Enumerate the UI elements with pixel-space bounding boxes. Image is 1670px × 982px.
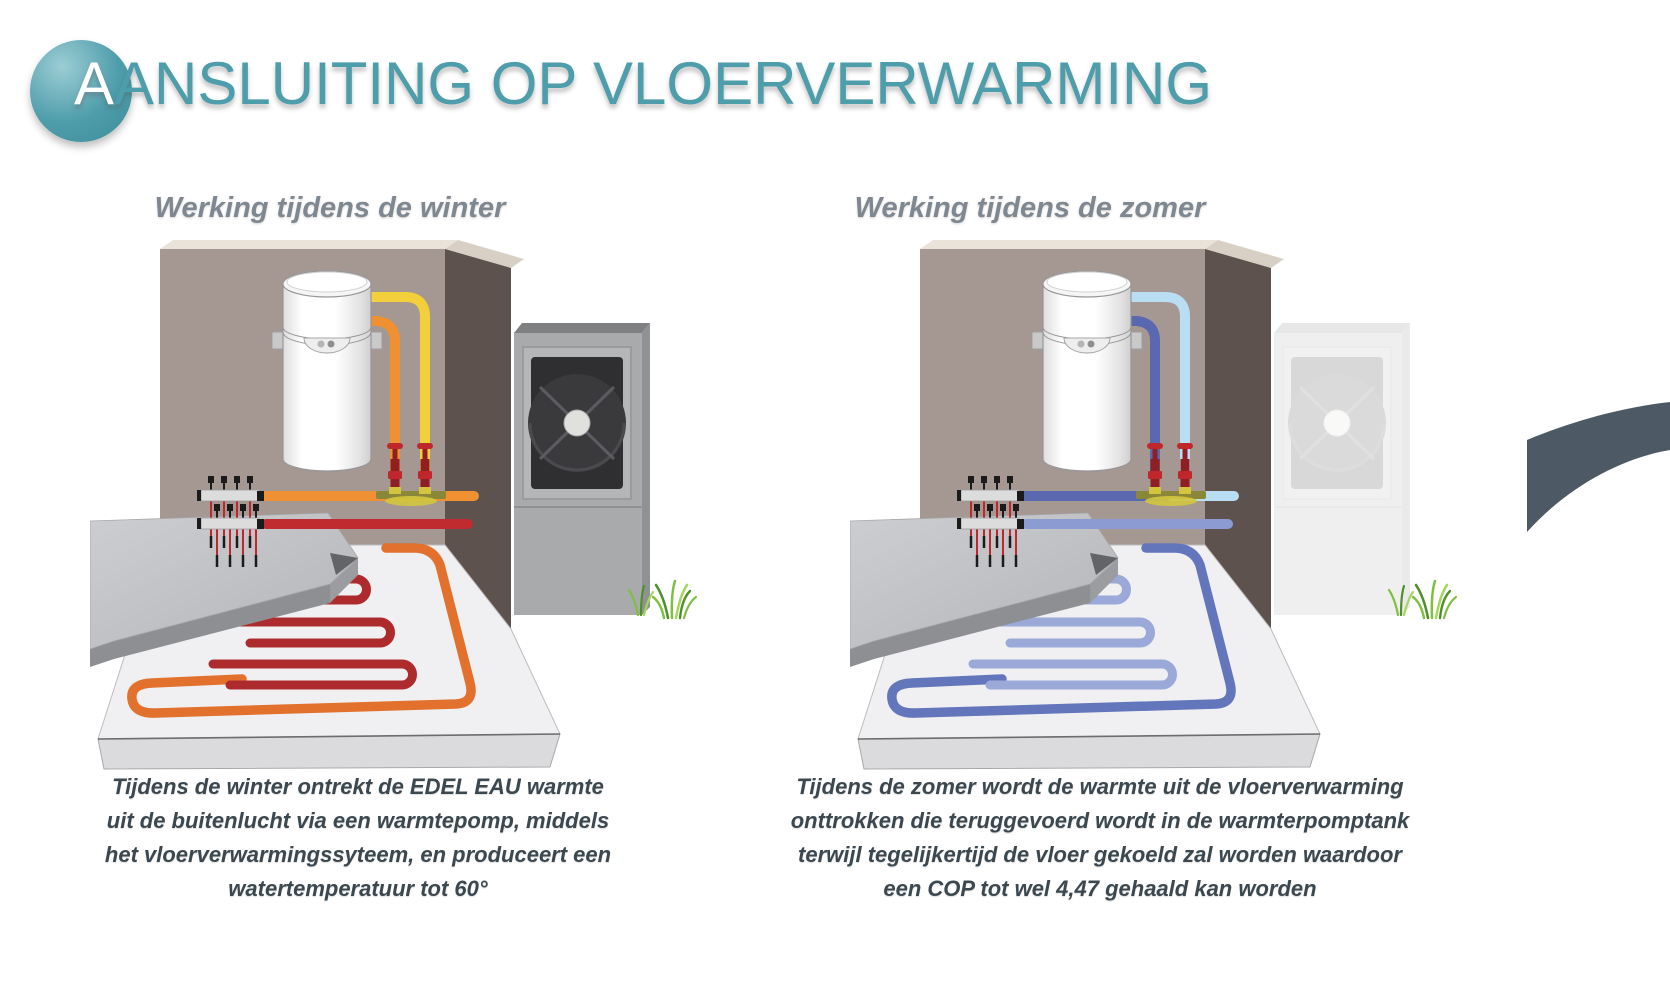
corner-swoosh-shape: [1527, 402, 1670, 532]
winter-scene: [90, 237, 710, 777]
winter-caption: Tijdens de winter ontrekt de EDEL EAU wa…: [68, 770, 648, 906]
title-initial-letter: A: [74, 50, 114, 117]
heat-pump-tank: [272, 271, 382, 471]
outdoor-heat-pump-unit: [1274, 323, 1410, 615]
title-rest: ANSLUITING OP VLOERVERWARMING: [114, 50, 1212, 117]
zomer-scene: [850, 237, 1470, 777]
corner-swoosh: [1527, 400, 1670, 535]
zomer-caption: Tijdens de zomer wordt de warmte uit de …: [760, 770, 1440, 906]
zomer-illustration: [850, 237, 1470, 777]
zomer-heading: Werking tijdens de zomer: [790, 192, 1270, 225]
page-title: AANSLUITING OP VLOERVERWARMING: [74, 52, 1212, 115]
infographic-page: AANSLUITING OP VLOERVERWARMING Werking t…: [0, 0, 1670, 982]
winter-heading: Werking tijdens de winter: [90, 192, 570, 225]
winter-illustration: [90, 237, 710, 777]
heat-pump-tank: [1032, 271, 1142, 471]
outdoor-heat-pump-unit: [514, 323, 650, 615]
